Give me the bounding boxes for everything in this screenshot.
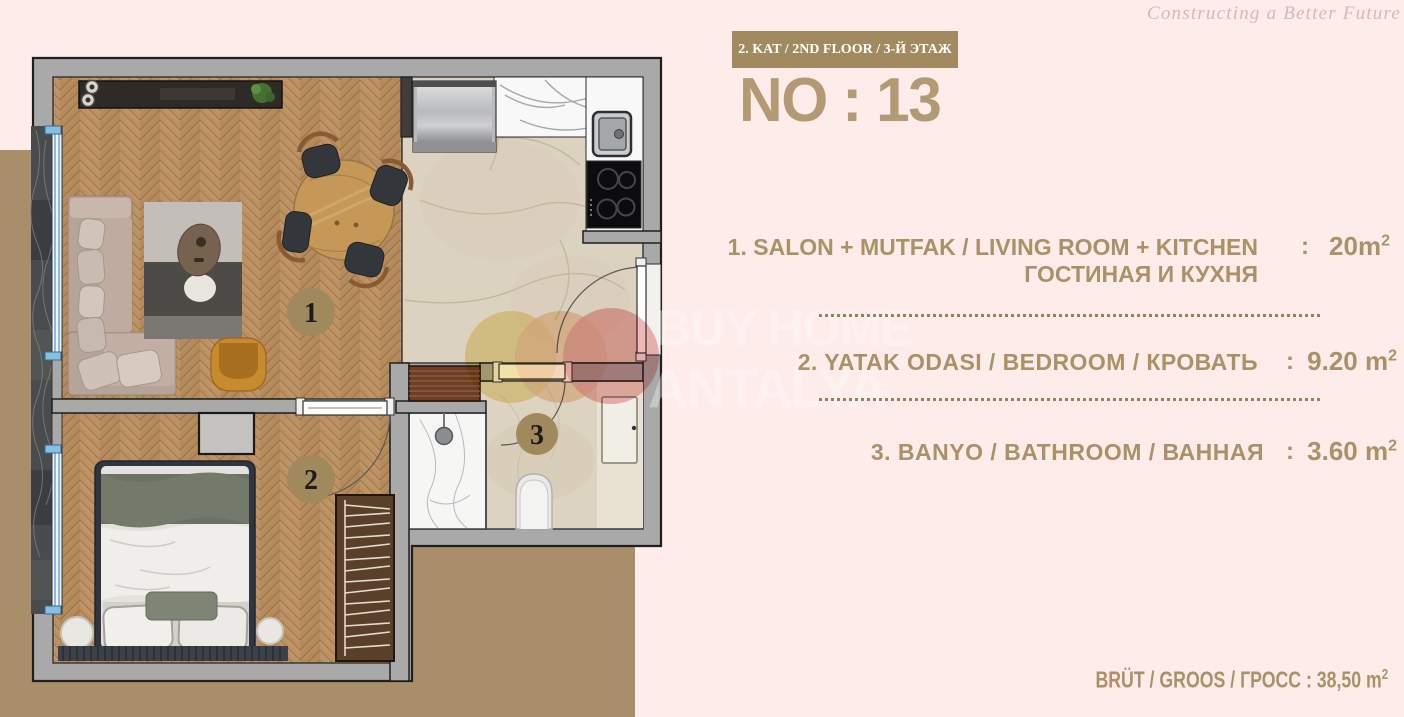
svg-text:2: 2 (304, 465, 318, 496)
svg-text:BUY HOME: BUY HOME (655, 300, 912, 356)
svg-text:1: 1 (304, 298, 318, 329)
svg-text:3: 3 (530, 420, 544, 451)
